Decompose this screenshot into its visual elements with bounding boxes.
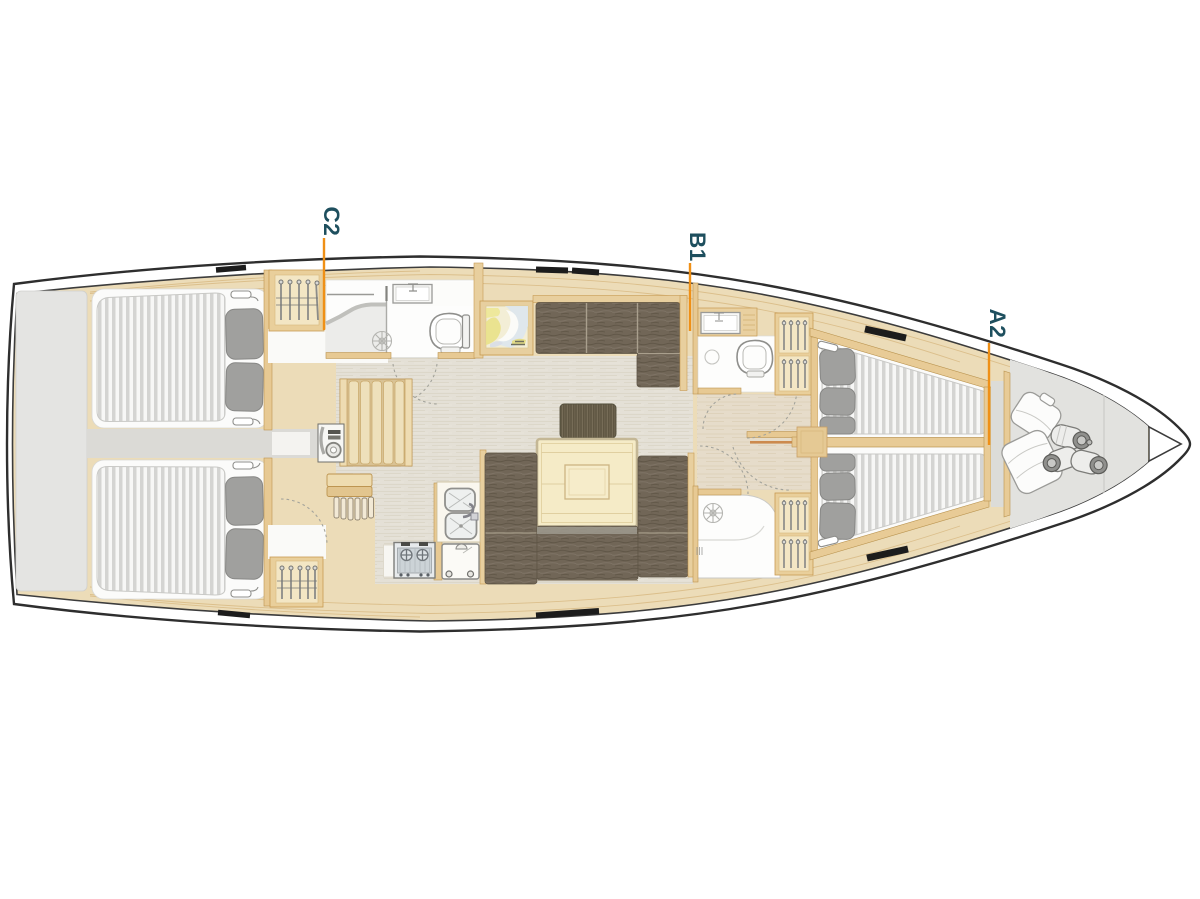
svg-text:B1: B1 <box>685 232 710 262</box>
svg-text:A2: A2 <box>985 309 1010 339</box>
svg-text:C2: C2 <box>319 207 344 237</box>
